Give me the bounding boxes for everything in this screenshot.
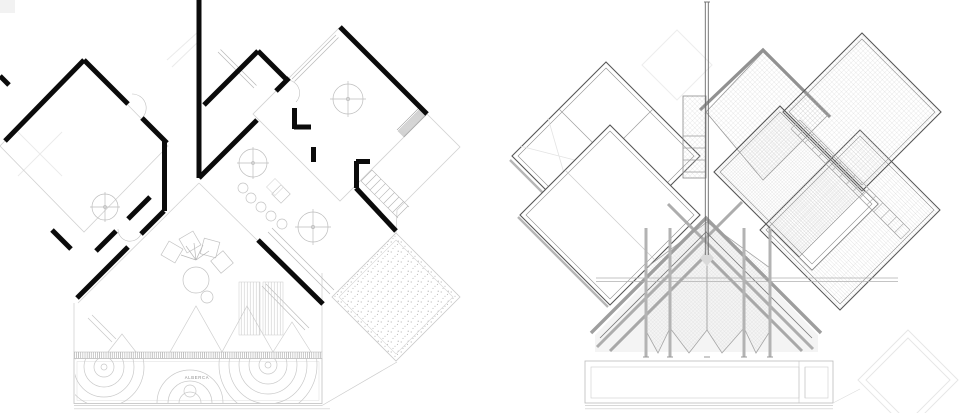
roof-plan-deck: [585, 361, 860, 409]
fan-icon: [295, 209, 331, 245]
fan-icon: [330, 81, 366, 117]
architectural-drawing-sheet: ALBERCA: [0, 0, 960, 413]
door-arcs: [118, 80, 300, 241]
corner-artifact: [0, 0, 15, 13]
bar-stools: [238, 179, 290, 229]
ghost-lines: [18, 31, 199, 176]
pool-label: ALBERCA: [185, 375, 209, 380]
stairs-to-terrace: [361, 170, 409, 218]
roof-plan-drawing: [510, 2, 958, 413]
stairs-upper: [397, 108, 426, 137]
ghost-roof-outline: [642, 30, 712, 100]
ghost-terrace-outline: [858, 330, 958, 413]
pool: ALBERCA: [64, 316, 397, 413]
drawings-canvas: ALBERCA: [0, 0, 960, 413]
gravel-terrace: [332, 233, 460, 361]
fan-icon: [237, 147, 269, 179]
pool-edge-hatch-strip: [74, 352, 322, 359]
ceiling-fans: [90, 81, 366, 245]
planter-cluster: [161, 231, 233, 303]
fan-icon: [90, 192, 120, 222]
floor-plan-drawing: ALBERCA: [0, 0, 460, 413]
deck-strips: [88, 282, 309, 342]
